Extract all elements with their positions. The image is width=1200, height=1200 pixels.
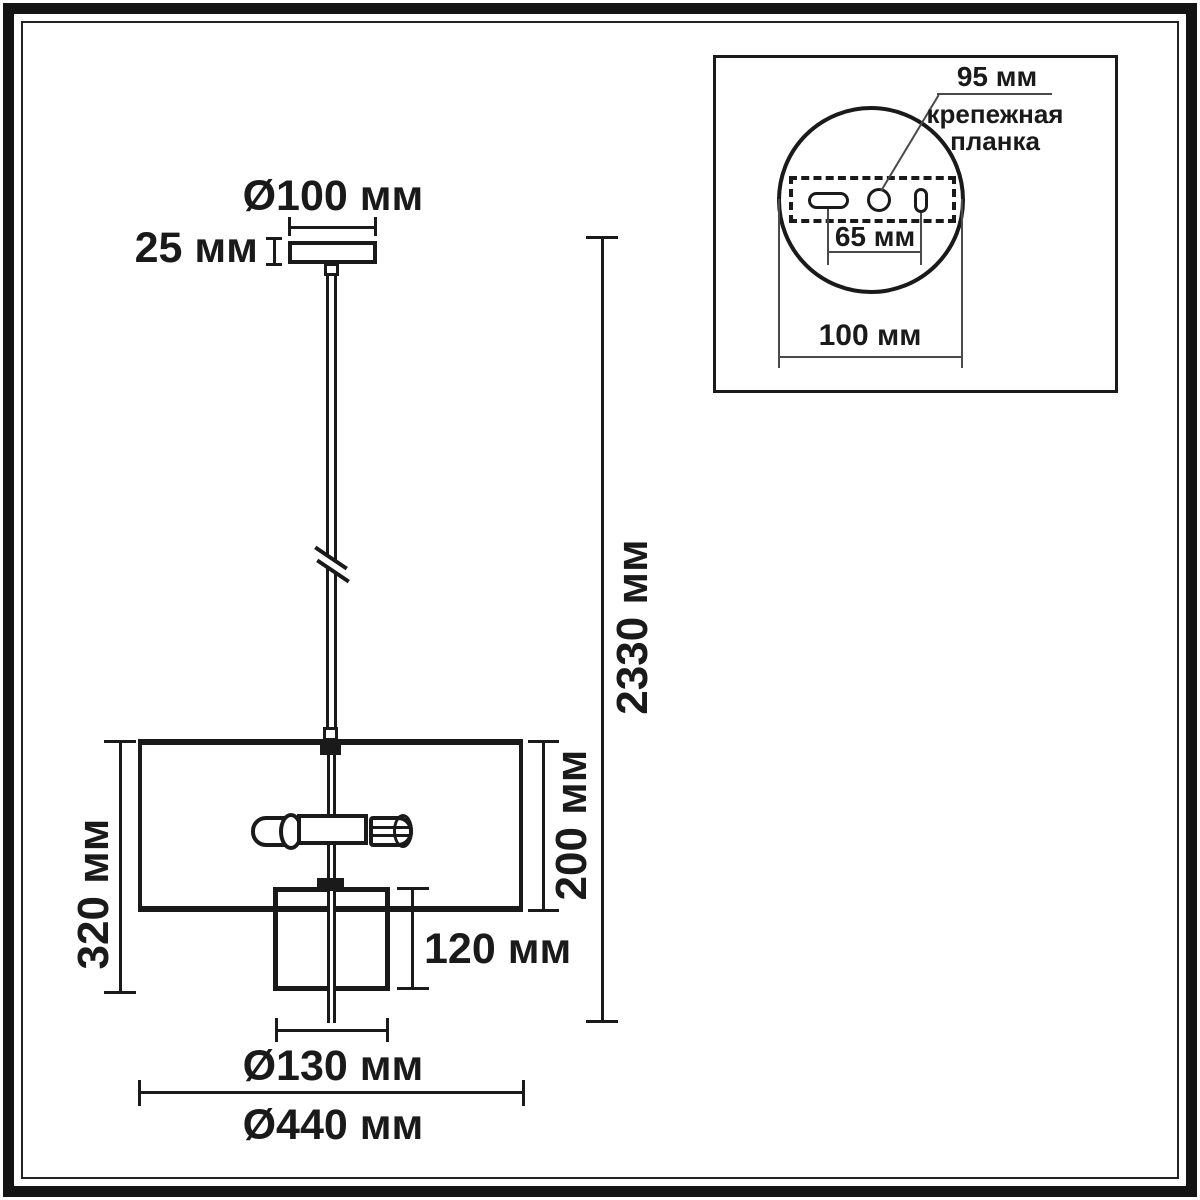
shade-height-label: 200 мм	[549, 715, 595, 935]
hole-spacing-label: 65 мм	[805, 222, 945, 251]
shade-diameter-tick-left	[138, 1080, 141, 1106]
shade-diameter-label: Ø440 мм	[223, 1103, 443, 1148]
canopy-dim-tick-left	[288, 217, 291, 236]
canopy-height-tick-bottom	[266, 263, 282, 266]
canopy-height-tick-line	[273, 237, 276, 266]
plate-length-label: 95 мм	[917, 62, 1077, 91]
inner-rod-upper	[327, 755, 336, 815]
canopy-dim-tick-right	[374, 217, 377, 236]
inner-height-dim-bottom	[397, 987, 429, 990]
plate-caption-line1: крепежная	[895, 101, 1095, 128]
inner-diameter-tick-right	[386, 1018, 389, 1042]
shade-top-connector	[323, 727, 338, 741]
shade-height-dim-line	[542, 740, 545, 912]
canopy-diameter-label: Ø100 мм	[213, 174, 453, 219]
pendant-lamp-dimension-drawing: Ø100 мм 25 мм 2330 мм 120 мм 320 мм 200	[0, 0, 1200, 1200]
total-height-label: 2330 мм	[610, 517, 656, 737]
base-diameter-label: 100 мм	[770, 320, 970, 352]
socket-hub	[297, 814, 368, 845]
plate-caption: крепежная планка	[895, 101, 1095, 156]
mounting-hole-center	[867, 188, 891, 212]
total-height-dim-bottom	[586, 1020, 618, 1023]
socket-thread-line-2	[372, 834, 410, 837]
fixture-height-label: 320 мм	[71, 784, 117, 1004]
plate-caption-line2: планка	[895, 128, 1095, 155]
plate-leader-horizontal	[937, 93, 1052, 95]
suspension-rod	[326, 275, 337, 741]
shade-diameter-dim-line	[139, 1091, 524, 1094]
canopy-height-label: 25 мм	[118, 226, 258, 271]
shade-top-hub	[320, 741, 341, 755]
inner-diameter-tick-left	[275, 1018, 278, 1042]
shade-diameter-tick-right	[522, 1080, 525, 1106]
socket-thread-line-1	[372, 826, 410, 829]
lamp-socket-right-end	[393, 814, 413, 848]
canopy-dim-line	[290, 226, 377, 229]
canopy-shape	[288, 241, 377, 264]
inner-height-dim-line	[411, 887, 414, 990]
bottom-rod	[327, 891, 336, 1023]
mounting-slot-left	[808, 192, 849, 209]
mounting-slot-right	[914, 188, 928, 213]
total-height-dim-line	[601, 236, 604, 1023]
inner-diameter-dim-line	[276, 1029, 389, 1032]
inner-diameter-label: Ø130 мм	[223, 1044, 443, 1089]
inner-height-label: 120 мм	[424, 927, 644, 972]
base-diameter-dim-line	[779, 356, 963, 358]
fixture-height-dim-line	[119, 740, 122, 994]
